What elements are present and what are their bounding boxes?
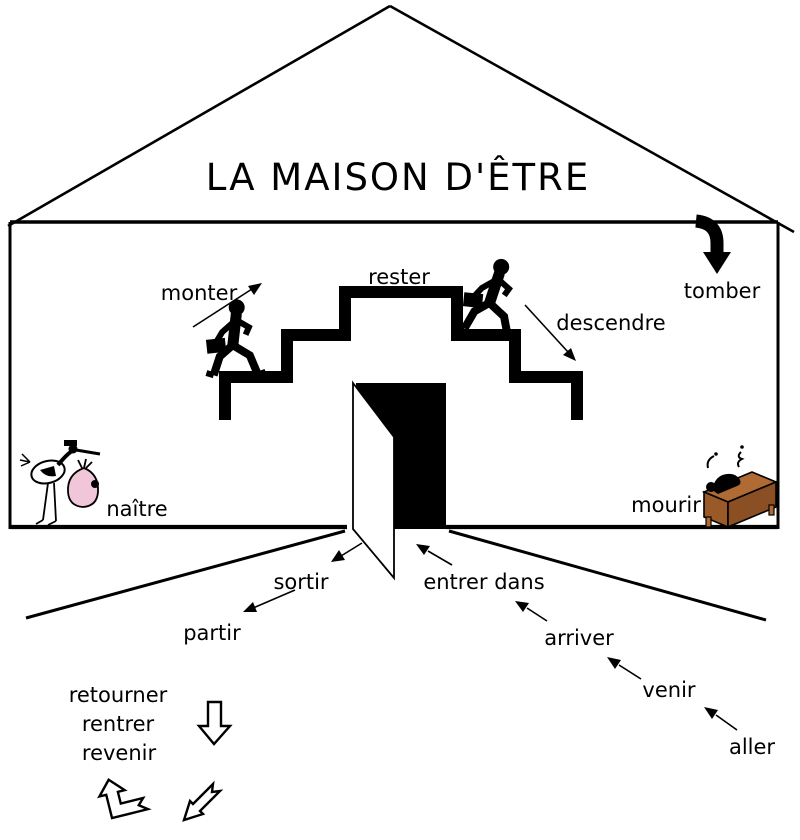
retourner-label: retourner [69,683,168,707]
sortir-arrow [331,543,362,562]
descendre-label: descendre [556,311,665,335]
diagram-canvas: LA MAISON D'ÊTRE monter [0,0,800,840]
return-bent-up-arrow-icon [96,772,148,820]
venir-arrow [607,657,641,679]
sortir-label: sortir [273,570,328,594]
maison-d-etre-diagram: LA MAISON D'ÊTRE monter [0,0,800,840]
naitre-label: naître [106,497,167,521]
revenir-label: revenir [82,741,157,765]
entrer-dans-label: entrer dans [423,570,544,594]
venir-label: venir [642,678,695,702]
aller-label: aller [729,735,775,759]
return-bent-down-arrow-icon [184,784,220,820]
path-lines [26,531,766,620]
runner-ascending-icon [199,297,266,380]
arriver-label: arriver [544,626,614,650]
rester-label: rester [368,265,430,289]
stork-icon [20,440,100,525]
mourir-label: mourir [631,493,701,517]
return-down-arrow-icon [199,702,230,744]
runner-descending-icon [457,255,524,338]
page-title: LA MAISON D'ÊTRE [206,155,590,199]
arriver-arrow [515,601,547,621]
door [353,383,446,578]
tomber-arrow-icon [696,221,731,274]
entrer-dans-arrow [416,544,452,565]
aller-arrow [704,707,737,730]
tomber-label: tomber [684,279,761,303]
partir-arrow [243,590,295,612]
death-desk-icon [704,445,776,527]
rentrer-label: rentrer [82,712,155,736]
monter-label: monter [161,281,238,305]
partir-label: partir [183,621,241,645]
